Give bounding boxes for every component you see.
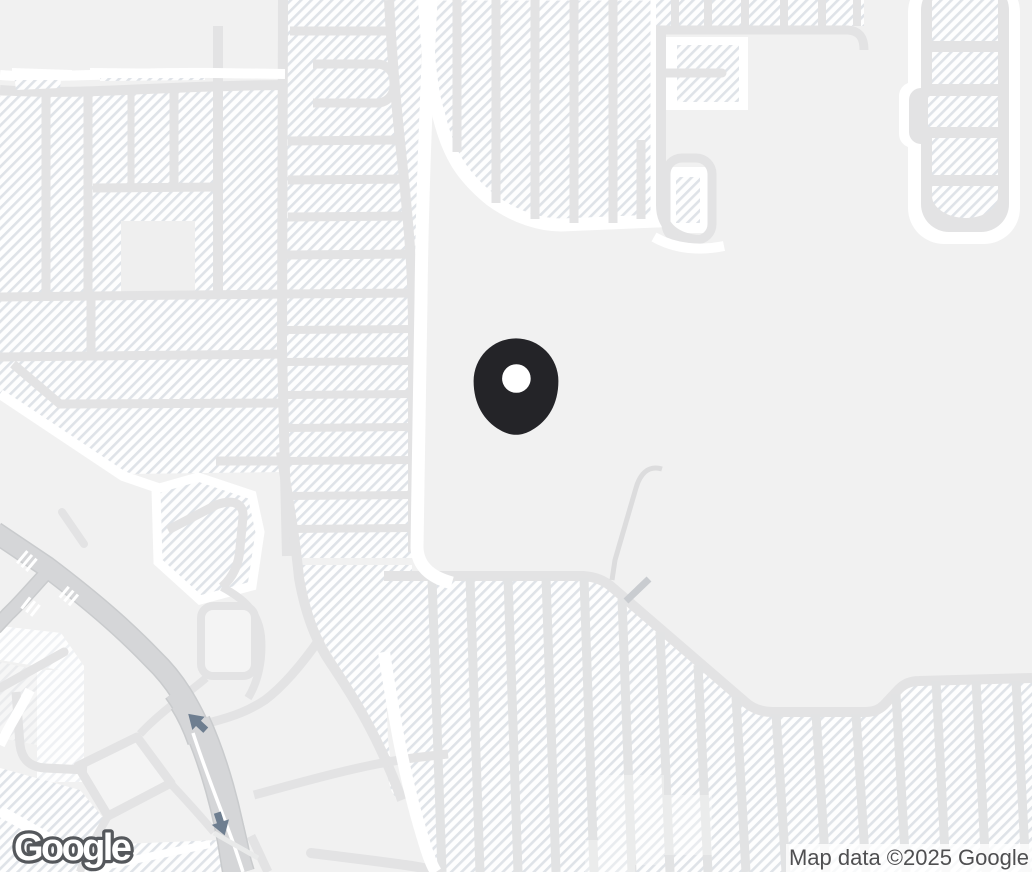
svg-text:Map data ©2025 Google: Map data ©2025 Google xyxy=(789,845,1029,870)
svg-text:Google: Google xyxy=(14,827,131,869)
